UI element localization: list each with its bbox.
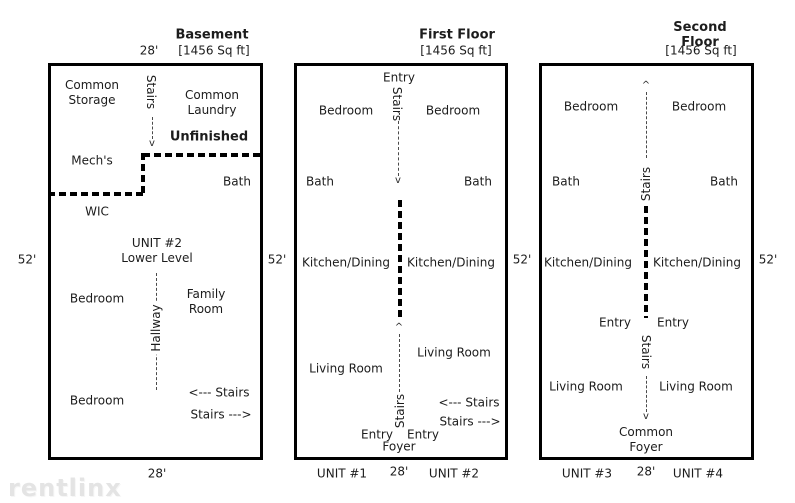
second-floor-stairs-bottom-label: Stairs <box>639 335 653 369</box>
first-floor-stairs-bottom-label: Stairs <box>393 394 407 428</box>
first-floor-stairs-left-note: <--- Stairs <box>438 396 499 411</box>
basement-bottom-width: 28' <box>148 467 167 482</box>
room-label-bath-right-sf: Bath <box>710 175 738 190</box>
basement-wall-lower <box>48 192 145 196</box>
second-floor-height-left: 52' <box>513 253 532 268</box>
room-label-living-left-ff: Living Room <box>309 362 383 377</box>
basement-wall-vertical <box>141 153 145 196</box>
room-label-unfinished: Unfinished <box>170 130 248 145</box>
room-label-bath-right-ff: Bath <box>464 175 492 190</box>
second-floor-stairs-top-dash <box>646 92 647 158</box>
first-floor-sqft: [1456 Sq ft] <box>420 44 491 59</box>
basement-hallway-label: Hallway <box>149 301 163 354</box>
room-label-entry-top-ff: Entry <box>383 71 415 86</box>
room-label-foyer-ff: Foyer <box>382 440 415 455</box>
first-floor-stairs-right-note: Stairs ---> <box>439 415 500 430</box>
room-label-bedroom-right-sf: Bedroom <box>672 100 726 115</box>
room-label-kitchen-right-ff: Kitchen/Dining <box>407 256 495 271</box>
basement-sqft: [1456 Sq ft] <box>178 44 249 59</box>
unit-label-1: UNIT #1 <box>317 467 367 482</box>
first-floor-bottom-width: 28' <box>390 465 409 480</box>
room-label-living-right-sf: Living Room <box>659 380 733 395</box>
first-floor-stairs-top-label: Stairs <box>390 87 404 121</box>
second-floor-stairs-top-label: Stairs <box>639 167 653 201</box>
room-label-bath-basement: Bath <box>223 175 251 190</box>
second-floor-bottom-width: 28' <box>637 465 656 480</box>
room-label-bedroom-right-ff: Bedroom <box>426 104 480 119</box>
watermark: rentlinx <box>8 474 122 502</box>
second-floor-wall-center <box>644 206 648 318</box>
first-floor-title: First Floor <box>419 28 495 43</box>
first-floor-stairs-top-dash <box>398 121 399 176</box>
second-floor-arrow-down-icon: v <box>643 412 649 422</box>
basement-stairs-dash <box>152 117 153 139</box>
second-floor-sqft: [1456 Sq ft] <box>665 44 736 59</box>
second-floor-arrow-up-icon: ^ <box>642 81 650 91</box>
basement-top-width: 28' <box>140 44 159 59</box>
room-label-common-laundry: Common Laundry <box>185 88 239 118</box>
basement-arrow-down-icon: v <box>149 139 155 149</box>
room-label-kitchen-left-ff: Kitchen/Dining <box>302 256 390 271</box>
first-floor-arrow-down-icon: v <box>395 176 401 186</box>
basement-title: Basement <box>175 28 248 43</box>
room-label-living-left-sf: Living Room <box>549 380 623 395</box>
room-label-entry-right-sf: Entry <box>657 316 689 331</box>
room-label-family-room: Family Room <box>187 287 226 317</box>
room-label-bedroom-left-sf: Bedroom <box>564 100 618 115</box>
room-label-kitchen-left-sf: Kitchen/Dining <box>544 256 632 271</box>
floor-plan-diagram: Basement 28' [1456 Sq ft] 52' Stairs v H… <box>0 0 795 503</box>
basement-height-left: 52' <box>18 253 37 268</box>
room-label-kitchen-right-sf: Kitchen/Dining <box>653 256 741 271</box>
room-label-wic: WIC <box>85 205 109 220</box>
room-label-mechs: Mech's <box>71 154 113 169</box>
room-label-entry-left-sf: Entry <box>599 316 631 331</box>
unit-label-2: UNIT #2 <box>429 467 479 482</box>
room-label-bedroom-upper: Bedroom <box>70 292 124 307</box>
first-floor-height-left: 52' <box>268 253 287 268</box>
room-label-bath-left-sf: Bath <box>552 175 580 190</box>
second-floor-stairs-bottom-dash <box>646 376 647 412</box>
room-label-common-storage: Common Storage <box>65 78 119 108</box>
room-label-bath-left-ff: Bath <box>306 175 334 190</box>
room-label-bedroom-left-ff: Bedroom <box>319 104 373 119</box>
basement-stairs-right-note: Stairs ---> <box>190 408 251 423</box>
basement-stairs-left-note: <--- Stairs <box>188 386 249 401</box>
unit-label-3: UNIT #3 <box>562 467 612 482</box>
second-floor-height-right: 52' <box>759 253 778 268</box>
first-floor-arrow-up-icon: ^ <box>395 323 403 333</box>
room-label-common-foyer: Common Foyer <box>619 425 673 455</box>
first-floor-wall-center <box>398 200 402 320</box>
first-floor-stairs-bottom-dash <box>399 334 400 392</box>
basement-wall-upper <box>143 153 263 157</box>
room-label-bedroom-lower: Bedroom <box>70 394 124 409</box>
unit-label-4: UNIT #4 <box>673 467 723 482</box>
room-label-unit2-lower-level: UNIT #2 Lower Level <box>121 236 192 266</box>
basement-stairs-label: Stairs <box>144 75 158 109</box>
room-label-living-right-ff: Living Room <box>417 346 491 361</box>
